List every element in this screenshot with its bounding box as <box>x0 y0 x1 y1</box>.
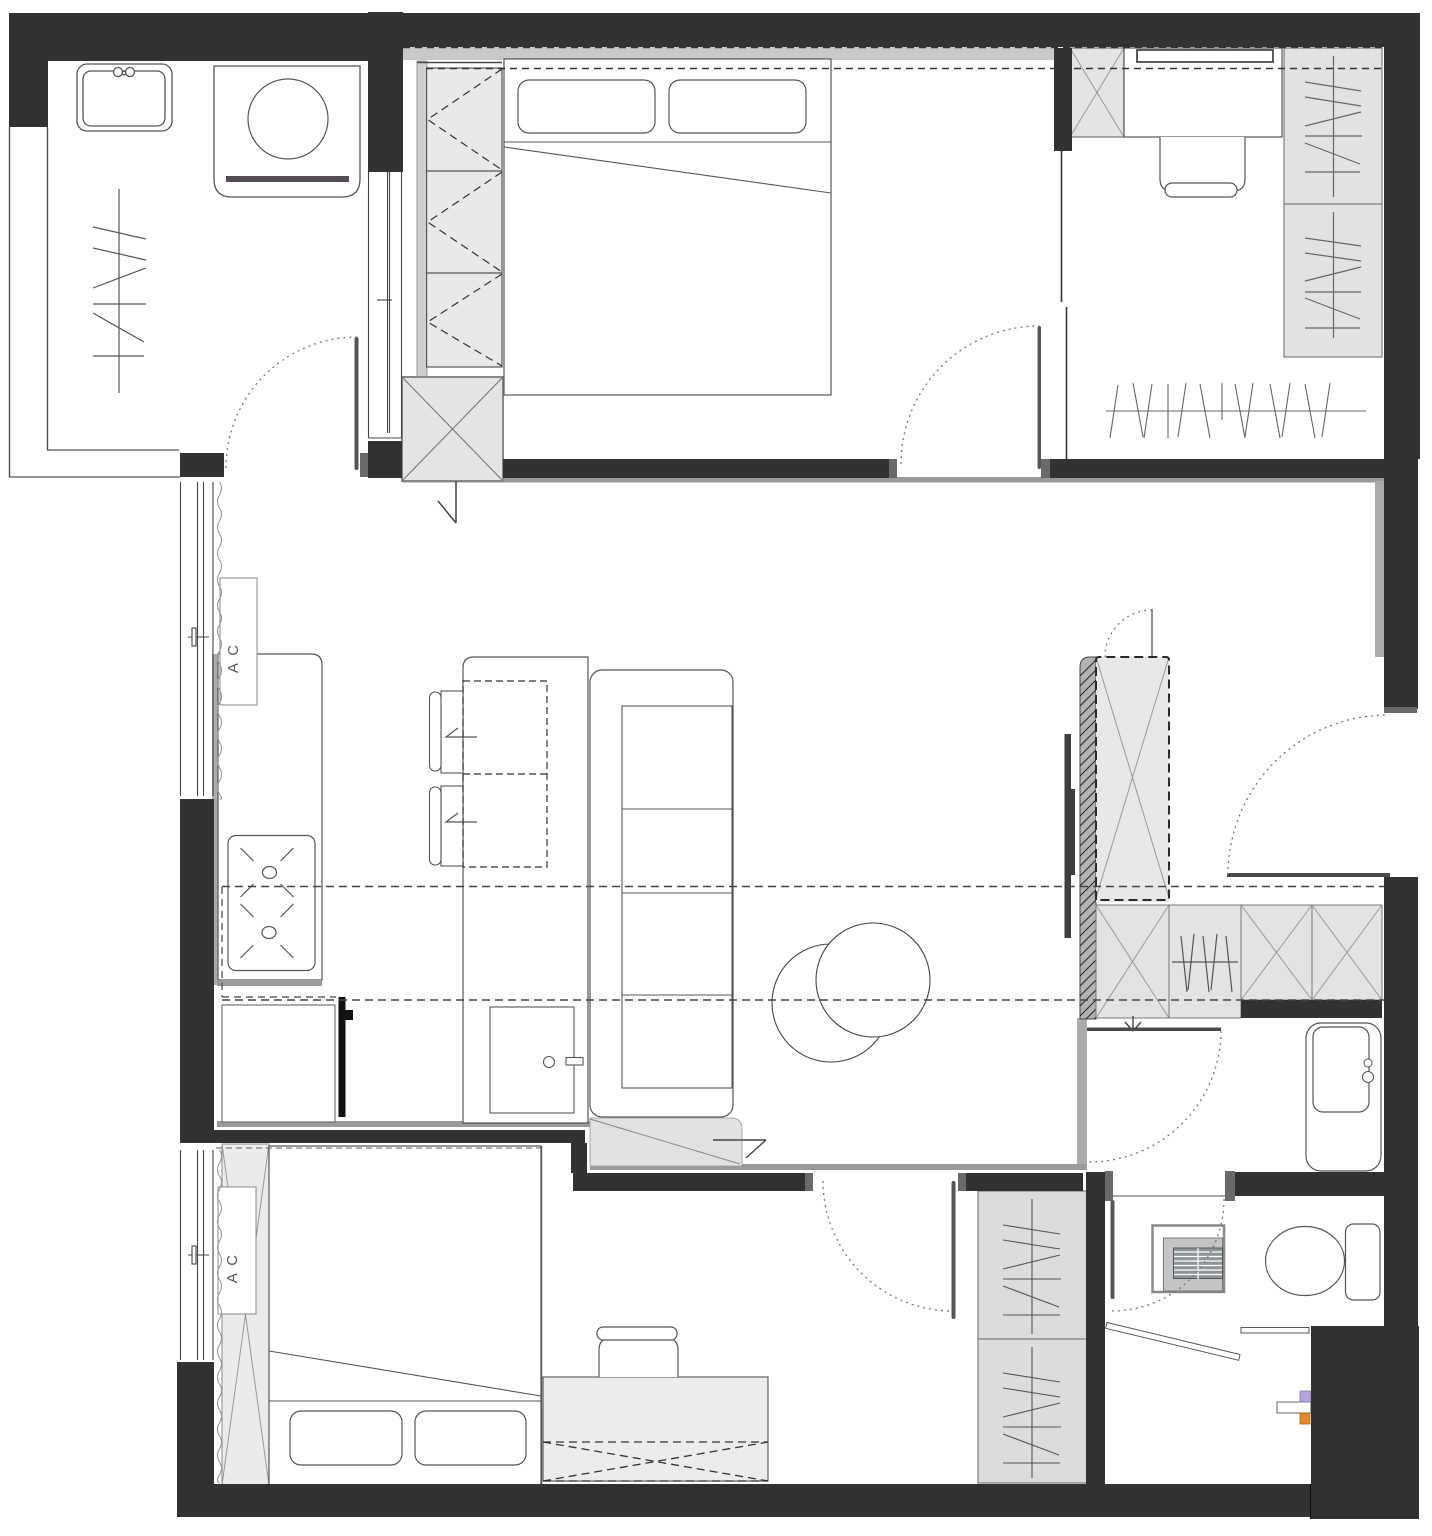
svg-text:A C: A C <box>225 643 242 673</box>
svg-text:A C: A C <box>224 1253 241 1283</box>
